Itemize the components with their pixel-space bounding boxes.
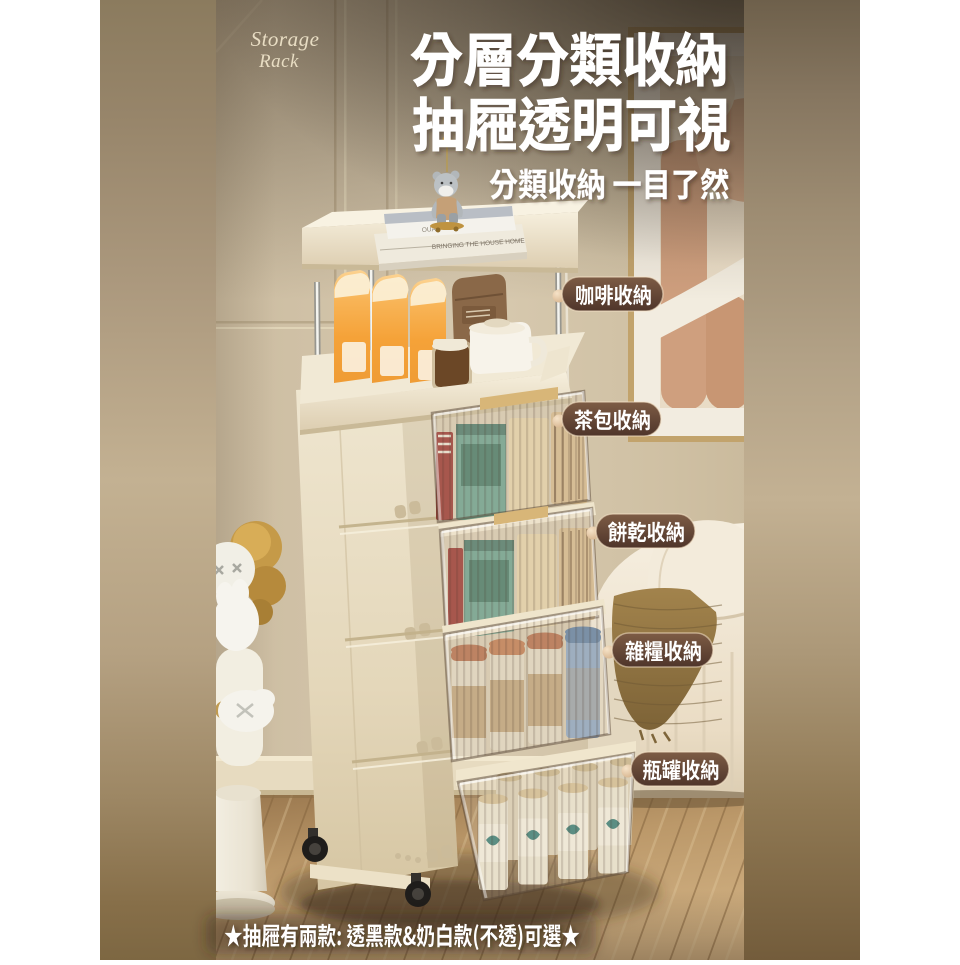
- svg-text:Rack: Rack: [258, 51, 299, 72]
- svg-text:Storage: Storage: [251, 27, 320, 51]
